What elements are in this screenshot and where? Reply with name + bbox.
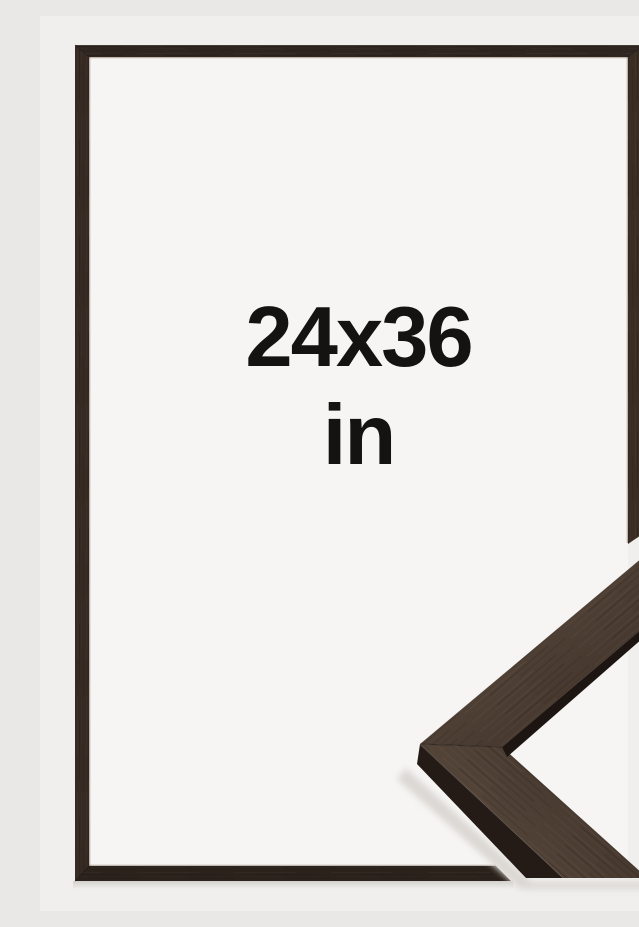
frame-mockup-graphic	[40, 16, 639, 911]
frame-border-right	[628, 45, 639, 544]
frame-border-left	[75, 45, 89, 881]
frame-drop-shadow	[73, 881, 513, 889]
frame-product-photo: 24x36 in	[40, 16, 639, 911]
frame-border-top	[75, 45, 639, 57]
frame-border-bottom	[75, 866, 511, 881]
frame-opening-area	[89, 57, 628, 866]
